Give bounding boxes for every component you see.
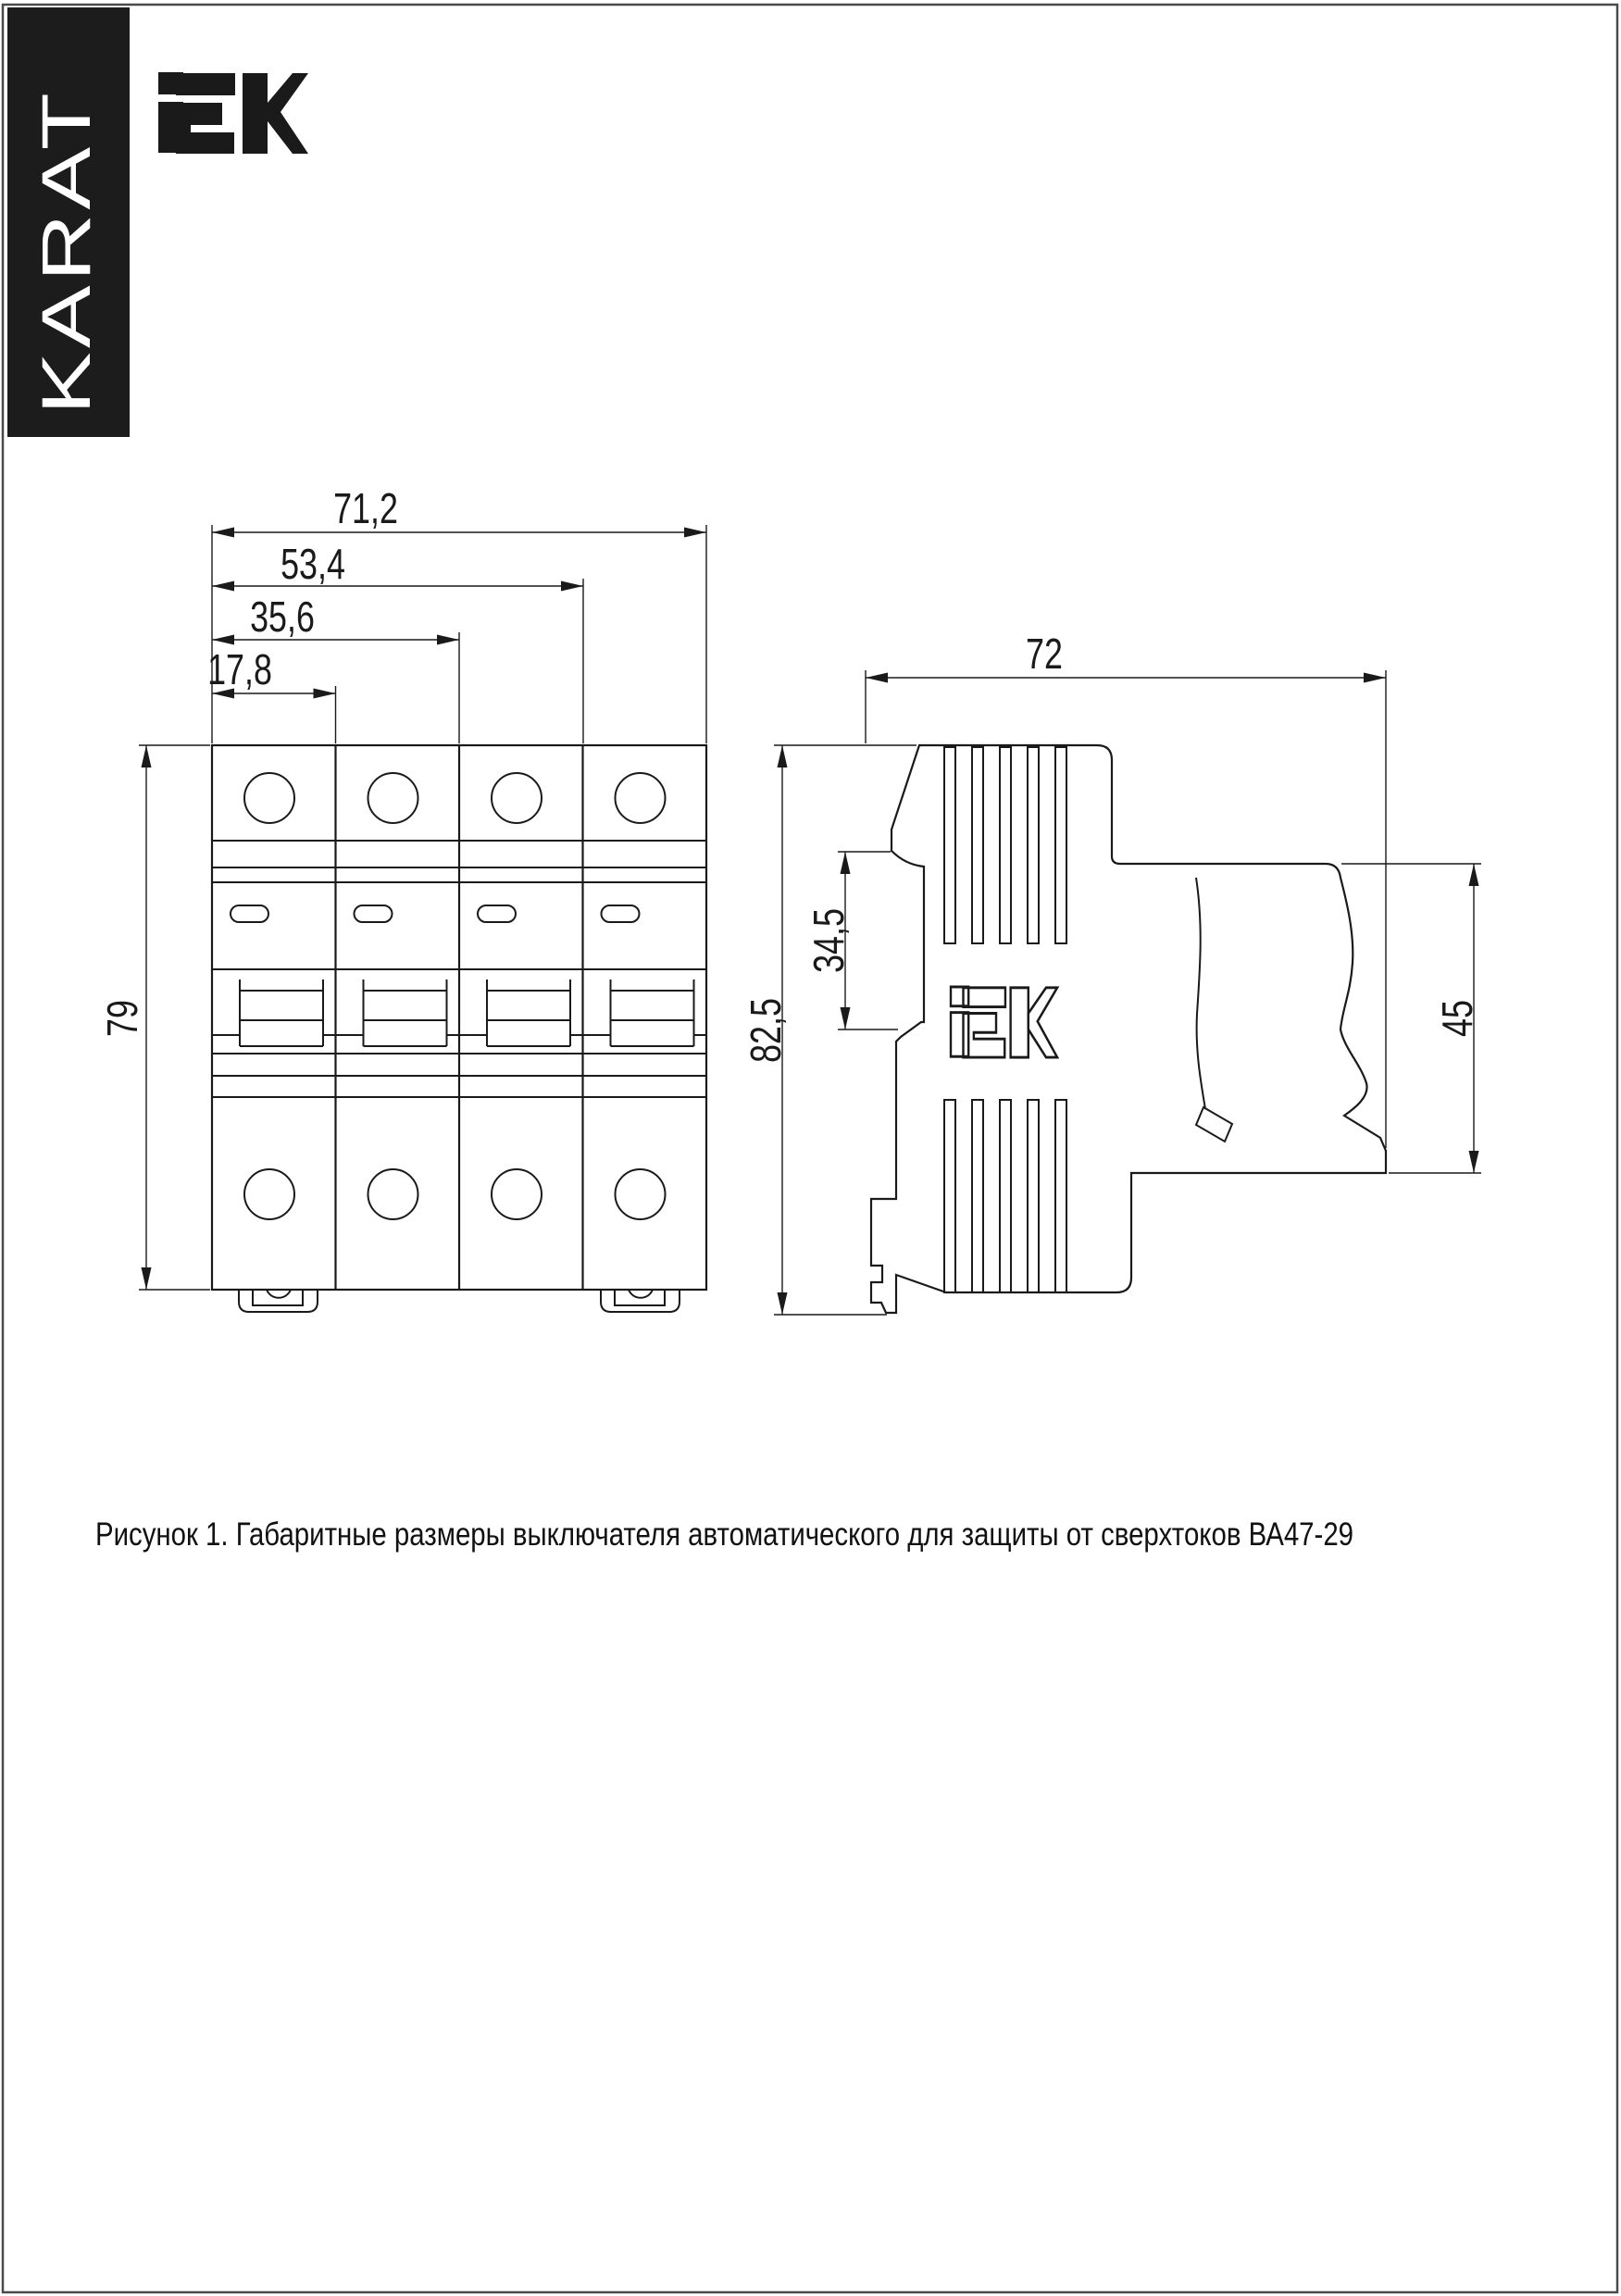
front-label-slots [231, 905, 640, 922]
dim-label-72: 72 [1026, 630, 1063, 678]
dim-label-82-5: 82,5 [742, 998, 790, 1063]
front-top-terminal-screws [244, 773, 666, 823]
karat-banner-label: KARAT [28, 89, 105, 415]
dimensional-drawing-canvas: KARAT [0, 0, 1621, 2296]
dimension-labels: 71,2 53,4 35,6 17,8 79 72 82,5 34,5 [99, 485, 1481, 1063]
dim-label-35-6: 35,6 [250, 593, 315, 641]
side-iek-logo [951, 987, 1057, 1057]
dim-label-45: 45 [1434, 1000, 1481, 1037]
front-din-clips [239, 1290, 680, 1312]
front-view [212, 745, 706, 1312]
dim-label-53-4: 53,4 [281, 541, 345, 588]
figure-caption: Рисунок 1. Габаритные размеры выключател… [95, 1516, 1353, 1553]
dimensions: 71,2 53,4 35,6 17,8 79 72 82,5 34,5 [99, 485, 1481, 1315]
dim-front-height [139, 745, 210, 1290]
side-view [871, 745, 1386, 1313]
side-body-outline [871, 745, 1386, 1313]
side-terminal-chamber [1196, 878, 1232, 1142]
dim-label-17-8: 17,8 [207, 646, 272, 693]
front-bottom-terminal-screws [244, 1169, 666, 1219]
dim-label-34-5: 34,5 [805, 908, 853, 973]
karat-banner: KARAT [7, 7, 130, 437]
ventilation-slats-upper [944, 747, 1066, 943]
document-page: KARAT [0, 0, 1621, 2296]
dim-label-71-2: 71,2 [333, 485, 398, 532]
ventilation-slats-lower [944, 1100, 1066, 1292]
iek-logo [158, 72, 308, 154]
dim-label-79: 79 [99, 1000, 146, 1037]
page-border [3, 5, 1617, 2292]
